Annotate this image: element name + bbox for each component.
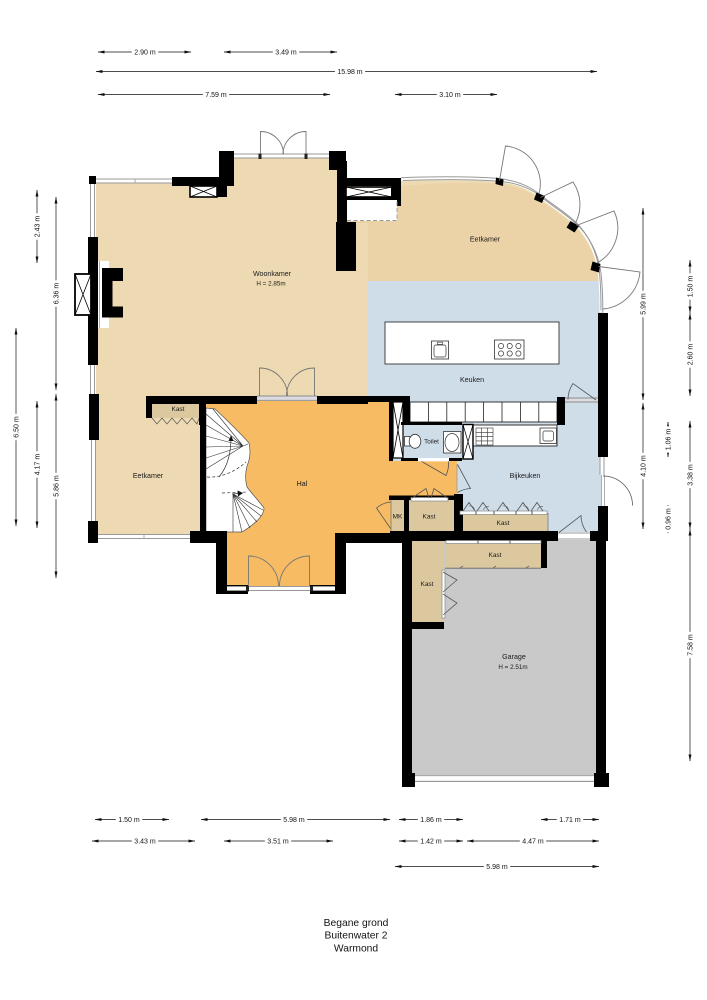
svg-text:Bijkeuken: Bijkeuken (510, 472, 541, 480)
svg-text:0.96 m: 0.96 m (666, 508, 673, 530)
svg-text:3.43 m: 3.43 m (134, 839, 156, 846)
svg-text:Hal: Hal (297, 480, 308, 488)
svg-text:Woonkamer: Woonkamer (253, 270, 292, 278)
svg-text:Kast: Kast (171, 406, 184, 413)
svg-text:Begane grond: Begane grond (324, 918, 389, 929)
svg-text:1.71 m: 1.71 m (559, 817, 581, 824)
svg-text:1.86 m: 1.86 m (420, 817, 442, 824)
svg-text:Buitenwater 2: Buitenwater 2 (325, 931, 388, 942)
svg-text:4.47 m: 4.47 m (522, 839, 544, 846)
svg-text:5.86 m: 5.86 m (54, 475, 61, 497)
svg-text:H = 2.85m: H = 2.85m (256, 281, 285, 288)
svg-text:H = 2.51m: H = 2.51m (498, 664, 527, 671)
svg-text:6.36 m: 6.36 m (54, 283, 61, 305)
svg-text:2.90 m: 2.90 m (134, 50, 156, 57)
svg-text:Kast: Kast (422, 514, 435, 521)
svg-text:Kast: Kast (420, 581, 433, 588)
svg-text:3.38 m: 3.38 m (688, 464, 695, 486)
svg-text:5.99 m: 5.99 m (641, 293, 648, 315)
svg-text:4.17 m: 4.17 m (35, 454, 42, 476)
svg-text:15.98 m: 15.98 m (337, 69, 362, 76)
svg-text:Warmond: Warmond (334, 943, 379, 954)
svg-text:Garage: Garage (502, 653, 526, 661)
svg-text:Eetkamer: Eetkamer (133, 472, 164, 480)
svg-text:Keuken: Keuken (460, 376, 484, 384)
svg-text:6.50 m: 6.50 m (14, 416, 21, 438)
svg-text:Eetkamer: Eetkamer (470, 236, 501, 244)
svg-text:Kast: Kast (496, 520, 509, 527)
svg-text:4.10 m: 4.10 m (641, 455, 648, 477)
svg-text:3.51 m: 3.51 m (267, 839, 289, 846)
svg-text:Toilet: Toilet (424, 439, 439, 446)
svg-text:7.59 m: 7.59 m (205, 92, 227, 99)
svg-text:Kast: Kast (488, 552, 501, 559)
svg-text:1.06 m: 1.06 m (666, 429, 673, 451)
svg-text:1.42 m: 1.42 m (420, 839, 442, 846)
svg-text:5.98 m: 5.98 m (283, 817, 305, 824)
svg-text:2.43 m: 2.43 m (35, 216, 42, 238)
svg-text:MK: MK (393, 514, 403, 521)
svg-text:1.50 m: 1.50 m (118, 817, 140, 824)
svg-text:3.10 m: 3.10 m (439, 92, 461, 99)
svg-text:1.50 m: 1.50 m (688, 276, 695, 298)
svg-text:2.60 m: 2.60 m (688, 344, 695, 366)
svg-text:7.58 m: 7.58 m (688, 634, 695, 656)
svg-text:5.98 m: 5.98 m (486, 864, 508, 871)
svg-text:3.49 m: 3.49 m (275, 50, 297, 57)
